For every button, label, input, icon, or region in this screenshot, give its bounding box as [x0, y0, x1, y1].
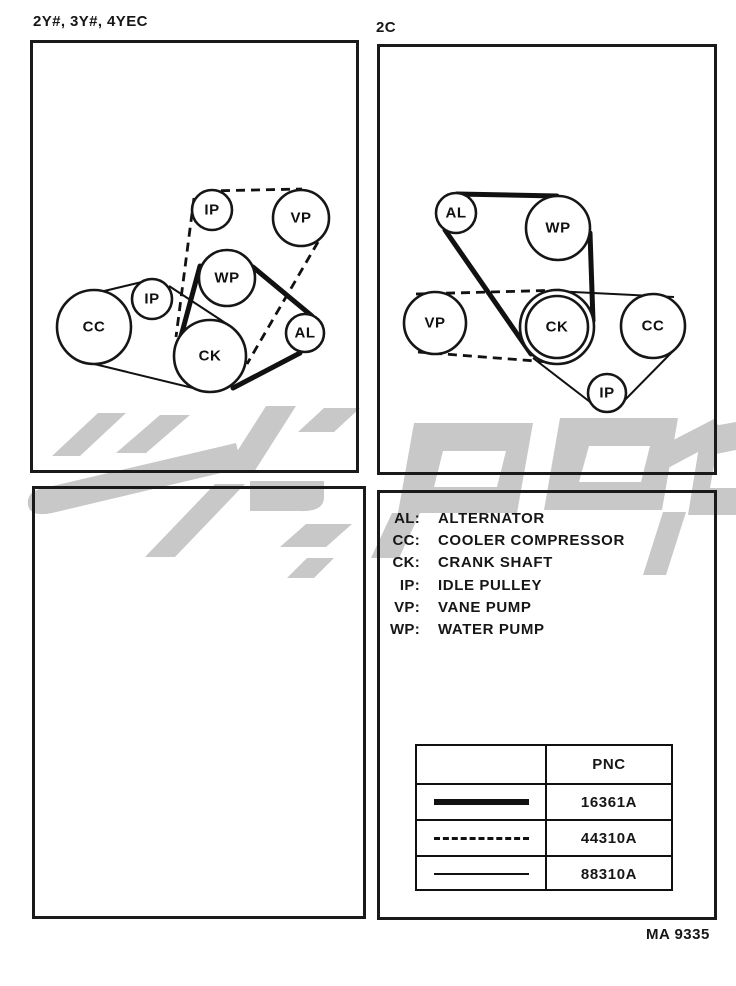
- legend-row: CK: CRANK SHAFT: [388, 552, 625, 574]
- legend-row: AL: ALTERNATOR: [388, 507, 625, 529]
- belt-segment: [253, 267, 312, 316]
- belt-segment: [590, 233, 593, 321]
- legend-name: IDLE PULLEY: [438, 577, 542, 594]
- pulley-label: IP: [599, 385, 614, 402]
- pulley-label: CK: [199, 348, 222, 365]
- pulley-label: AL: [295, 325, 316, 342]
- pulley-label: IP: [144, 291, 159, 308]
- section-label-right: 2C: [376, 19, 396, 36]
- pulley-vane-pump: VP: [404, 292, 466, 354]
- thin-solid-line-sample: [434, 873, 529, 875]
- pulley-label: WP: [545, 220, 570, 237]
- belt-segment: [457, 194, 557, 196]
- pulley-crank-shaft: CK: [520, 290, 594, 364]
- abbreviation-legend: AL: ALTERNATOR CC: COOLER COMPRESSOR CK:…: [388, 507, 625, 641]
- line-sample-cell: [417, 855, 545, 891]
- legend-abbr: IP:: [388, 577, 420, 594]
- pulley-cooler-compressor: CC: [621, 294, 685, 358]
- pnc-table-header: PNC: [545, 746, 671, 783]
- legend-name: VANE PUMP: [438, 599, 531, 616]
- pulley-crank-shaft: CK: [174, 320, 246, 392]
- line-sample-cell: [417, 819, 545, 855]
- belt-diagram-right: AL WP VP CK CC IP: [377, 44, 717, 475]
- pulley-vane-pump: VP: [273, 190, 329, 246]
- pulley-label: CK: [546, 319, 569, 336]
- figure-code: MA 9335: [646, 926, 710, 943]
- panel-empty: [32, 486, 366, 919]
- pnc-value-cell: 44310A: [545, 819, 671, 855]
- legend-name: ALTERNATOR: [438, 510, 545, 527]
- legend-row: VP: VANE PUMP: [388, 596, 625, 618]
- belt-diagram-left: IP VP WP IP CC CK AL: [30, 40, 359, 473]
- legend-abbr: VP:: [388, 599, 420, 616]
- legend-name: WATER PUMP: [438, 621, 545, 638]
- legend-name: CRANK SHAFT: [438, 554, 553, 571]
- pnc-value-cell: 88310A: [545, 855, 671, 891]
- pulley-idle-top: IP: [192, 190, 232, 230]
- legend-abbr: WP:: [388, 621, 420, 638]
- dashed-line-sample: [434, 837, 529, 840]
- pnc-value-cell: 16361A: [545, 783, 671, 819]
- belt-segment: [533, 358, 594, 405]
- pulley-alternator: AL: [436, 193, 476, 233]
- pulley-label: IP: [204, 202, 219, 219]
- thick-solid-line-sample: [434, 799, 529, 805]
- legend-abbr: AL:: [388, 510, 420, 527]
- legend-row: IP: IDLE PULLEY: [388, 574, 625, 596]
- legend-name: COOLER COMPRESSOR: [438, 532, 625, 549]
- pulley-cooler-compressor: CC: [57, 290, 131, 364]
- pnc-table: PNC 16361A 44310A 88310A: [415, 744, 673, 891]
- pulley-label: VP: [424, 315, 445, 332]
- pulley-label: WP: [214, 270, 239, 287]
- section-label-left: 2Y#, 3Y#, 4YEC: [33, 13, 148, 30]
- legend-abbr: CC:: [388, 532, 420, 549]
- legend-abbr: CK:: [388, 554, 420, 571]
- legend-row: CC: COOLER COMPRESSOR: [388, 529, 625, 551]
- pulley-alternator: AL: [286, 314, 324, 352]
- pulley-label: CC: [642, 318, 665, 335]
- pulley-label: VP: [290, 210, 311, 227]
- legend-row: WP: WATER PUMP: [388, 618, 625, 640]
- pulley-water-pump: WP: [199, 250, 255, 306]
- pulley-water-pump: WP: [526, 196, 590, 260]
- pnc-table-header-sample-cell: [417, 746, 545, 783]
- pulley-label: CC: [83, 319, 106, 336]
- pulley-label: AL: [446, 205, 467, 222]
- pulley-idle: IP: [588, 374, 626, 412]
- line-sample-cell: [417, 783, 545, 819]
- pulley-idle-left: IP: [132, 279, 172, 319]
